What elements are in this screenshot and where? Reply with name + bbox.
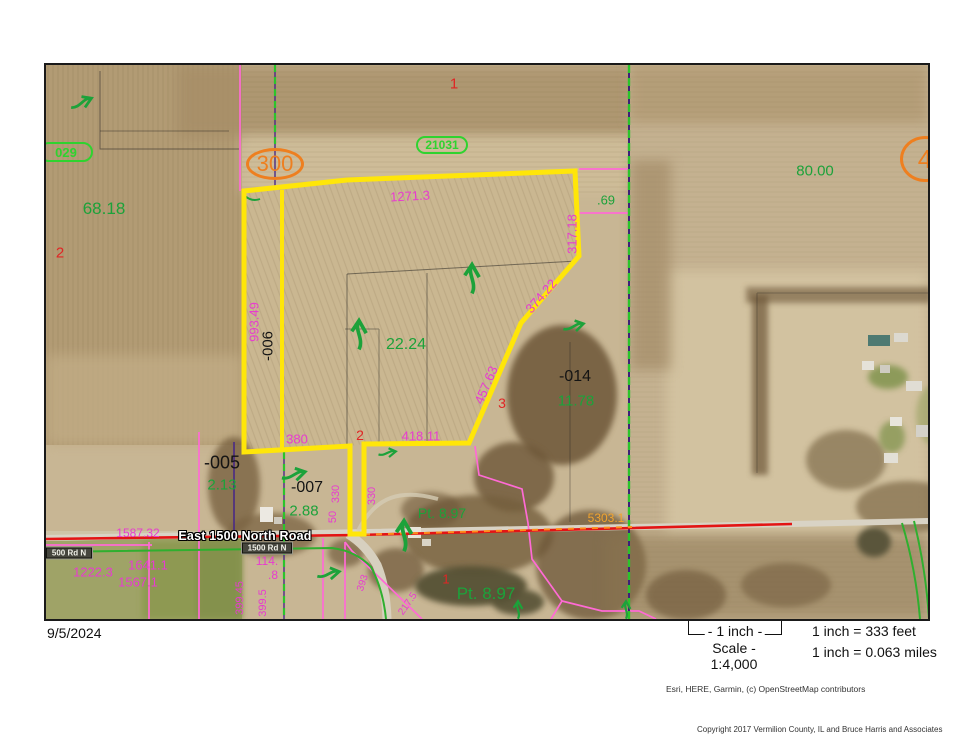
dimension-label: 114. [256, 554, 278, 568]
survey-badge: 029 [44, 142, 93, 162]
scale-miles: 1 inch = 0.063 miles [812, 644, 937, 660]
parcel-number: -007 [291, 479, 323, 497]
route-marker: 4 [900, 136, 930, 182]
dimension-label: 50 [327, 511, 339, 523]
dimension-label: 317.18 [565, 214, 580, 254]
road-name: East 1500 North Road [178, 529, 311, 543]
dimension-label: .8 [268, 568, 278, 582]
dimension-label: 457.63 [471, 364, 500, 406]
dimension-label: 330 [366, 487, 378, 505]
acreage-label: 11.78 [558, 393, 594, 410]
dimension-label: 1567.1 [118, 575, 158, 590]
map-date: 9/5/2024 [47, 625, 102, 641]
dimension-label: 418.11 [402, 429, 441, 444]
dimension-label: 1587.32 [116, 526, 159, 540]
scale-feet: 1 inch = 333 feet [812, 623, 916, 639]
acreage-label: 80.00 [796, 163, 834, 180]
parcel-number: -005 [204, 453, 240, 474]
page: { "map": { "date": "9/5/2024", "road": {… [0, 0, 970, 750]
acreage-label: 68.18 [83, 199, 126, 219]
lot-number: 1 [450, 76, 458, 93]
road-badge: 1500 Rd N [242, 543, 292, 554]
lot-number: 2 [356, 427, 364, 443]
survey-badge: 21031 [416, 136, 468, 154]
dimension-label: 374.22 [522, 276, 559, 316]
map-viewport[interactable]: 1271.3317.18374.22457.63418.11380993.493… [44, 63, 930, 621]
acreage-label: 2.13 [207, 477, 236, 494]
acreage-label: .69 [597, 193, 615, 208]
route-marker: 300 [246, 148, 304, 180]
acreage-label: Pt. 8.97 [457, 584, 516, 604]
dimension-label: 1641.1 [128, 558, 168, 573]
dimension-label: 217.5 [396, 591, 419, 618]
dimension-label: 1271.3 [390, 187, 430, 204]
road-measure: 5303.1 [588, 511, 625, 525]
dimension-label: 330 [330, 485, 342, 503]
dimension-label: 399.5 [257, 589, 269, 617]
acreage-label: 2.88 [289, 503, 318, 520]
scale-ratio: Scale - 1:4,000 [688, 640, 780, 672]
scale-bar: - 1 inch - [688, 621, 782, 635]
acreage-label: 22.24 [386, 336, 426, 354]
dimension-label: 993.49 [247, 302, 262, 342]
acreage-label: Pt. 8.97 [418, 505, 466, 521]
road-badge: 500 Rd N [46, 548, 92, 559]
map-labels-layer: 1271.3317.18374.22457.63418.11380993.493… [46, 65, 928, 619]
lot-number: 2 [56, 245, 64, 262]
lot-number: 1 [442, 572, 449, 587]
scale-bar-label: - 1 inch - [705, 623, 765, 639]
map-copyright: Copyright 2017 Vermilion County, IL and … [697, 725, 942, 734]
parcel-number: -014 [559, 368, 591, 386]
map-attribution: Esri, HERE, Garmin, (c) OpenStreetMap co… [666, 684, 865, 694]
dimension-label: 399.45 [234, 581, 246, 615]
dimension-label: 380 [286, 432, 308, 447]
parcel-number: -006 [260, 331, 277, 361]
lot-number: 3 [498, 395, 506, 411]
dimension-label: 1222.3 [73, 565, 113, 580]
dimension-label: 393 [355, 573, 371, 592]
